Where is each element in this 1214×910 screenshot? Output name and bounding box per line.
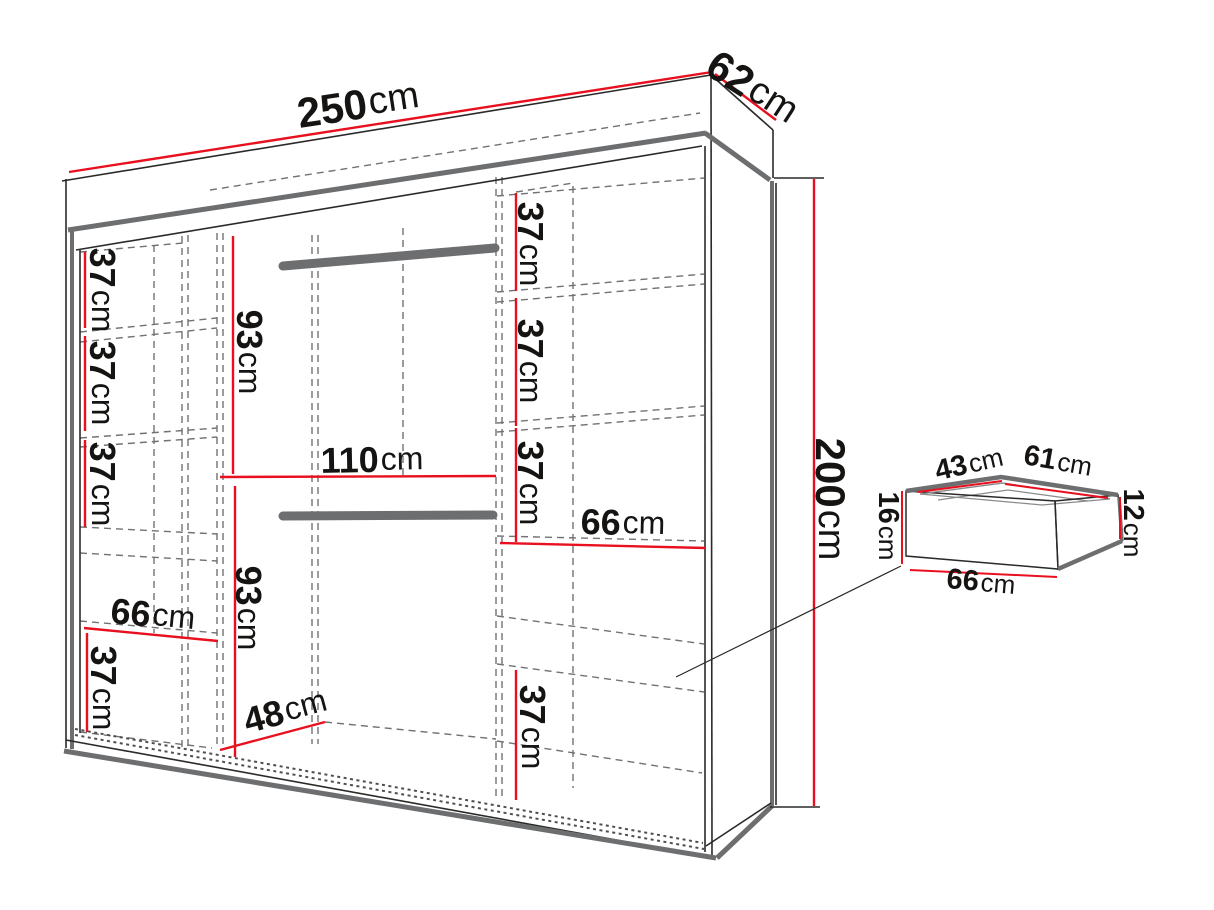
dim-value: 37 (83, 442, 124, 482)
front-right-edge (711, 76, 712, 856)
shelf-line (80, 428, 217, 438)
right-shelf-2-label: 37cm (511, 319, 552, 404)
dim-unit: cm (873, 526, 903, 561)
dim-value: 93 (229, 566, 270, 606)
shelf-line (497, 616, 704, 644)
hanging-rail-lower (283, 515, 493, 516)
dim-unit: cm (365, 74, 421, 123)
floor-front-edge-line (75, 729, 703, 843)
dim-unit: cm (232, 352, 268, 395)
wardrobe-structure (62, 75, 824, 858)
diagram-canvas: 250cm 62cm 200cm 37cm 37cm 37cm 66cm 37c… (0, 0, 1214, 910)
floor-front-edge-line (75, 735, 704, 849)
shelf-line (497, 284, 704, 302)
dim-value: 37 (513, 685, 554, 725)
dim-unit: cm (85, 484, 121, 527)
dim-value: 37 (511, 319, 552, 359)
left-shelf-2-label: 37cm (83, 341, 124, 426)
dim-value: 37 (511, 202, 552, 242)
dim-value: 200 (808, 438, 855, 508)
dim-value: 66 (945, 563, 980, 598)
dim-unit: cm (965, 442, 1006, 479)
dimension-labels: 250cm 62cm 200cm 37cm 37cm 37cm 66cm 37c… (83, 40, 1150, 769)
dim-unit: cm (979, 567, 1016, 600)
floor-back-edge-line (325, 722, 496, 739)
center-section-width-label: 110cm (320, 438, 423, 481)
dim-value: 61 (1021, 439, 1058, 476)
wardrobe-width-label: 250cm (294, 72, 422, 137)
dim-value: 37 (511, 441, 552, 481)
right-shelf-3-label: 37cm (511, 441, 552, 526)
top-back-edge-line (210, 113, 700, 190)
wardrobe-dimension-diagram: 250cm 62cm 200cm 37cm 37cm 37cm 66cm 37c… (0, 0, 1214, 910)
dim-unit: cm (513, 361, 549, 404)
hanging-rail-upper (283, 248, 495, 266)
right-shelf-width-label: 66cm (580, 500, 666, 543)
dim-unit: cm (622, 504, 666, 541)
crown-side-edge (705, 133, 770, 180)
dim-value: 93 (230, 310, 271, 350)
drawer-front-height-label: 16cm (872, 492, 904, 561)
dim-unit: cm (810, 510, 852, 561)
drawer-outer-width-label: 66cm (945, 563, 1016, 601)
dim-unit: cm (513, 483, 549, 526)
dim-value: 37 (83, 248, 124, 288)
left-shelf-3-label: 37cm (83, 442, 124, 527)
drawer-inner-height-label: 12cm (1117, 489, 1149, 558)
drawer-side-bottom-edge (1058, 541, 1122, 569)
right-shelf-1-label: 37cm (511, 202, 552, 287)
drawer-front-panel (906, 491, 1058, 569)
dim-value: 37 (84, 646, 125, 686)
dim-value: 12 (1117, 489, 1149, 521)
shelf-depth-line (516, 183, 573, 192)
dim-line-right-shelf-width-66 (500, 543, 706, 548)
dim-value: 110 (320, 438, 379, 480)
dim-value: 66 (580, 500, 621, 542)
drawer-leader-line (676, 566, 901, 677)
dim-value: 66 (109, 590, 153, 635)
dim-unit: cm (86, 688, 122, 731)
right-shelf-4-label: 37cm (513, 685, 554, 770)
crown-front-edge (68, 133, 706, 230)
dim-unit: cm (85, 290, 121, 333)
upper-hanging-height-label: 93cm (230, 310, 271, 395)
dim-unit: cm (380, 440, 423, 477)
dim-unit: cm (231, 608, 267, 651)
dim-unit: cm (151, 596, 197, 636)
dim-value: 37 (83, 341, 124, 381)
dim-unit: cm (280, 682, 331, 728)
shelf-line (497, 415, 704, 432)
shelf-line (497, 178, 704, 196)
side-bottom-edge (717, 806, 772, 858)
left-shelf-1-label: 37cm (83, 248, 124, 333)
dim-value: 16 (872, 492, 904, 524)
dim-unit: cm (1055, 446, 1094, 482)
shelf-line (497, 406, 704, 423)
dim-unit: cm (85, 383, 121, 426)
drawer-detail (902, 477, 1122, 577)
left-shelf-4-label: 37cm (84, 646, 125, 731)
dim-unit: cm (515, 727, 551, 770)
dim-unit: cm (1118, 523, 1148, 558)
interior-dashed-lines (75, 113, 704, 849)
drawer-inner-width-label: 61cm (1021, 439, 1094, 482)
wardrobe-height-label: 200cm (808, 438, 855, 561)
shelf-line (80, 527, 217, 534)
shelf-line (80, 553, 217, 561)
dim-unit: cm (513, 244, 549, 287)
lower-hanging-height-label: 93cm (229, 566, 270, 651)
wardrobe-depth-label: 62cm (699, 40, 808, 134)
plinth-front-edge (64, 751, 716, 858)
left-shelf-width-label: 66cm (109, 590, 197, 639)
